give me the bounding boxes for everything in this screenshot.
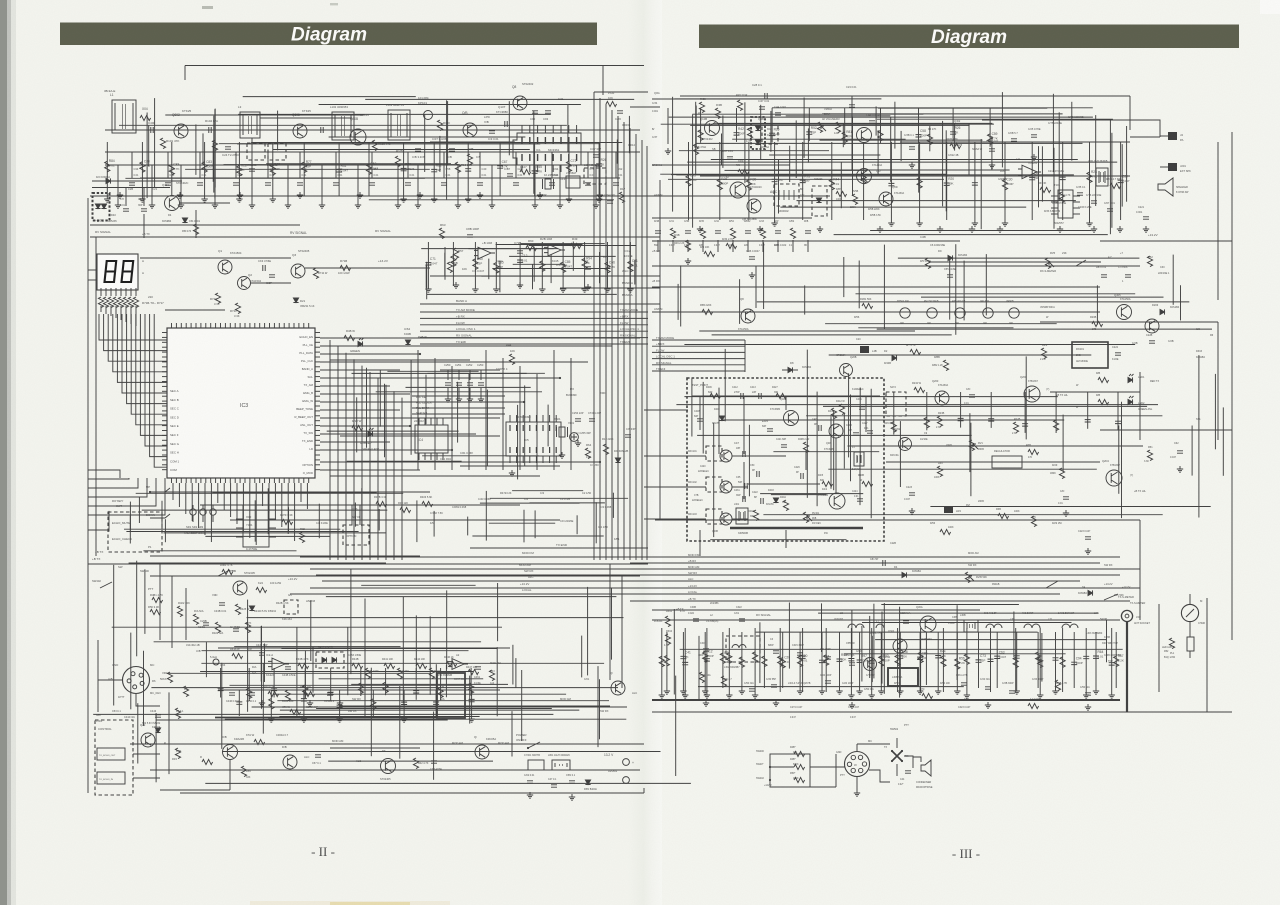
svg-text:680P: 680P [768,644,774,647]
svg-text:C53I 0.1: C53I 0.1 [566,774,576,777]
svg-text:2.2K: 2.2K [1118,659,1124,663]
svg-text:C/B2: C/B2 [789,221,795,223]
svg-text:C22: C22 [518,167,523,171]
svg-text:10/16E: 10/16E [624,254,633,258]
svg-text:C93: C93 [543,117,549,121]
svg-text:+13.2V: +13.2V [288,577,297,581]
svg-text:R49 2.2K: R49 2.2K [674,242,685,245]
svg-text:C/01: C/01 [734,612,740,615]
svg-text:9P: 9P [796,472,799,474]
svg-text:0.01: 0.01 [518,174,523,177]
svg-text:R/52: R/52 [729,221,735,223]
svg-text:J201: J201 [1180,164,1186,168]
svg-text:8P: 8P [754,496,757,499]
svg-text:2.2K: 2.2K [571,164,577,168]
svg-text:N/A: N/A [440,235,445,239]
svg-text:C22: C22 [338,167,343,171]
svg-text:50KA: 50KA [160,677,167,681]
svg-text:GND: GND [836,751,842,754]
svg-text:R44: R44 [506,343,512,347]
svg-text:D2420 5.6V IN5232: D2420 5.6V IN5232 [254,610,277,613]
svg-text:C47: C47 [1034,172,1040,176]
svg-text:Diagram: Diagram [931,27,1007,48]
svg-text:D83 0.01: D83 0.01 [1096,266,1107,269]
svg-text:PLL_DATA: PLL_DATA [299,351,313,355]
svg-text:+13.2V: +13.2V [1104,582,1113,586]
svg-text:Q203: Q203 [932,379,939,383]
svg-text:C420: C420 [700,466,706,468]
svg-text:MC: MC [150,663,154,667]
svg-text:C4/7: C4/7 [734,442,740,445]
svg-text:SEC H: SEC H [170,451,179,455]
svg-text:ANT SOCKET: ANT SOCKET [1134,622,1150,625]
svg-text:ALC: ALC [632,691,637,695]
svg-text:R81: R81 [846,130,852,134]
svg-text:+B RX: +B RX [656,342,665,346]
svg-text:R42B 1.5K: R42B 1.5K [276,601,289,605]
svg-text:C40: C40 [302,167,307,171]
svg-text:PTT: PTT [904,724,909,727]
svg-text:C412: C412 [732,386,738,389]
svg-text:Q/: Q/ [610,671,613,675]
svg-text:R/5B 3.5K: R/5B 3.5K [870,214,881,217]
svg-text:C44B 1/50E: C44B 1/50E [282,674,296,677]
svg-text:310-302-1B: 310-302-1B [186,643,200,647]
svg-text:C/3: C/3 [540,491,545,495]
svg-text:C60: C60 [202,167,207,171]
svg-text:220: 220 [148,295,153,299]
svg-text:C/46 0.0047: C/46 0.0047 [746,250,760,253]
svg-text:A: A [142,271,144,275]
svg-text:RV1: RV1 [978,442,983,445]
svg-text:D4: D4 [894,565,898,569]
svg-text:R23B: R23B [938,412,945,415]
svg-text:K04B: K04B [404,332,411,336]
svg-text:LR3: LR3 [956,509,961,513]
svg-text:D6: D6 [382,749,386,753]
svg-text:C/20 100P: C/20 100P [842,682,854,685]
svg-text:R403 5.6K: R403 5.6K [420,495,433,499]
svg-text:3.3K: 3.3K [214,302,220,306]
svg-text:33K: 33K [246,776,251,779]
svg-text:C252: C252 [466,363,473,367]
svg-text:D/B: D/B [282,745,287,749]
svg-text:C62: C62 [1174,442,1179,445]
svg-text:IC3: IC3 [240,403,248,409]
svg-text:0.047: 0.047 [999,655,1007,659]
svg-text:0.01: 0.01 [410,174,415,177]
svg-text:C/43 0.068: C/43 0.068 [478,497,491,501]
svg-text:R/44B: R/44B [884,362,891,365]
svg-text:Q40B: Q40B [712,531,718,533]
svg-text:C72: C72 [571,159,577,163]
svg-text:R721: R721 [230,309,237,313]
svg-text:+B RX: +B RX [652,279,660,283]
svg-text:C/N2 0.1: C/N2 0.1 [652,164,662,167]
svg-text:C94: C94 [374,167,379,171]
svg-text:IC2-A: IC2-A [266,653,273,657]
svg-text:R33: R33 [172,757,177,761]
svg-text:SW RX: SW RX [688,571,697,575]
svg-text:C/3B 330P: C/3B 330P [1002,682,1014,685]
svg-text:C40: C40 [482,167,487,171]
svg-text:UP: UP [146,485,150,489]
svg-text:SCL: SCL [308,375,314,379]
svg-text:R28: R28 [721,177,727,181]
svg-text:KTA150A: KTA150A [938,384,948,387]
svg-text:R64: R64 [1098,650,1104,654]
svg-text:C/756 7.5K: C/756 7.5K [430,511,443,515]
svg-text:2.3K: 2.3K [1012,432,1017,435]
svg-text:C/76 220/16E: C/76 220/16E [1086,194,1102,197]
svg-text:AGC: AGC [622,269,629,273]
svg-text:10K: 10K [948,182,953,186]
svg-text:- II -: - II - [311,844,335,859]
svg-text:10K: 10K [902,655,907,659]
svg-text:LOCAL OSC 1: LOCAL OSC 1 [456,327,476,331]
svg-text:C/2B: C/2B [1168,340,1174,343]
svg-text:RED TX: RED TX [1150,380,1159,383]
svg-text:C3B 47/6E: C3B 47/6E [430,768,442,771]
svg-text:+B TX H/L: +B TX H/L [1056,393,1069,397]
svg-text:4.7K: 4.7K [536,170,542,174]
svg-text:C/67 0.01: C/67 0.01 [1104,202,1115,205]
svg-text:L30B: L30B [960,614,966,617]
svg-text:SW7: SW7 [116,504,123,508]
svg-text:C44: C44 [900,778,905,781]
svg-text:R42 4.7K: R42 4.7K [418,762,429,765]
svg-text:C444 N/A: C444 N/A [124,716,135,719]
svg-text:C/3B 0.1: C/3B 0.1 [904,134,914,137]
svg-text:R/B: R/B [1096,394,1101,397]
svg-text:DW RX: DW RX [348,709,357,713]
svg-text:D403: D403 [768,489,774,492]
svg-text:FW DEV: FW DEV [812,523,821,525]
svg-text:Q80B: Q80B [350,117,358,121]
svg-text:2.2W: 2.2W [1040,358,1046,361]
svg-text:TX_END: TX_END [302,439,313,443]
svg-text:0.01: 0.01 [374,174,379,177]
svg-text:R37B 3.3K: R37B 3.3K [374,495,387,499]
svg-text:+B TX: +B TX [142,232,150,236]
svg-text:R/A: R/A [252,665,257,669]
svg-text:R/B: R/B [736,164,740,167]
svg-text:20KB: 20KB [946,444,952,447]
svg-text:LD: LD [309,447,313,451]
svg-text:0.047: 0.047 [1122,179,1130,183]
svg-text:R3B: R3B [996,508,1001,511]
svg-text:RX SIGNAL: RX SIGNAL [456,334,472,338]
svg-text:C57 0.1: C57 0.1 [312,762,321,765]
svg-text:R322 10K: R322 10K [178,601,190,605]
svg-text:R51: R51 [1148,446,1153,449]
svg-text:G5: G5 [288,593,292,597]
svg-text:D/0 K0S12B: D/0 K0S12B [614,449,629,453]
svg-text:10K: 10K [510,349,515,353]
svg-text:0.01: 0.01 [302,174,307,177]
svg-text:TX: TX [884,746,887,749]
svg-text:TX_AM: TX_AM [304,383,314,387]
svg-text:C422: C422 [752,491,758,494]
svg-text:R4B W: R4B W [346,329,355,333]
svg-text:R60: R60 [528,239,534,243]
svg-text:3.3K: 3.3K [1144,460,1149,463]
svg-text:C20: C20 [856,338,861,341]
svg-text:Q1: Q1 [218,249,222,253]
svg-text:K24: K24 [258,581,263,585]
svg-text:Q4P: Q4P [826,442,831,445]
svg-text:K0S9B4: K0S9B4 [912,570,921,573]
svg-text:C81 5P: C81 5P [870,558,879,561]
svg-text:C2 1/50: C2 1/50 [582,491,592,495]
svg-text:(Y): (Y) [1046,388,1050,391]
svg-text:R/A N/A: R/A N/A [194,609,204,613]
svg-text:R/29: R/29 [1052,464,1058,467]
svg-text:C254 22P: C254 22P [572,411,584,415]
svg-text:R55: R55 [536,165,542,169]
svg-text:F/B1: F/B1 [614,537,620,541]
svg-text:IN5231 5.1K: IN5231 5.1K [300,304,315,308]
svg-text:R4723 2K: R4723 2K [500,491,512,495]
svg-text:D21: D21 [300,299,306,303]
svg-text:(Y): (Y) [1130,474,1133,477]
svg-text:C3B: C3B [952,616,957,619]
svg-text:KTC3880: KTC3880 [824,448,835,451]
svg-text:TX EMI: TX EMI [456,340,466,344]
svg-text:P1: P1 [148,545,152,549]
svg-text:C42: C42 [238,167,243,171]
svg-text:B/: B/ [652,128,655,131]
svg-text:+13.2V: +13.2V [520,582,529,586]
svg-text:R67: R67 [1118,654,1124,658]
svg-text:10K: 10K [841,658,846,662]
svg-text:0.047: 0.047 [776,178,784,182]
svg-text:C/43: C/43 [759,221,765,223]
svg-text:R/TO: R/TO [894,683,900,685]
svg-text:Q10B: Q10B [700,117,707,121]
svg-text:CONDENSER: CONDENSER [916,781,932,784]
svg-text:A2S503: A2S503 [608,769,618,773]
svg-text:C41: C41 [685,651,691,655]
svg-text:K0S9B4: K0S9B4 [162,220,172,223]
svg-text:R461 4.7K: R461 4.7K [220,563,233,567]
svg-text:C67: C67 [502,160,508,164]
svg-text:2.2K: 2.2K [774,132,780,136]
svg-text:33P: 33P [1034,176,1039,180]
svg-text:C86: C86 [270,167,275,171]
svg-text:C58: C58 [920,129,926,133]
svg-text:R/4B: R/4B [674,234,680,237]
svg-text:CHGB: CHGB [1198,622,1205,625]
svg-text:R84: R84 [109,159,115,163]
svg-text:R/5B 220K: R/5B 220K [868,208,880,211]
svg-text:1B0K: 1B0K [1050,472,1056,475]
svg-text:Q/6A: Q/6A [654,92,660,95]
svg-text:R232 W: R232 W [912,382,922,385]
svg-text:ST02405: ST02405 [298,249,310,253]
svg-text:33008402: 33008402 [778,210,789,213]
svg-text:C30: C30 [1007,177,1013,181]
svg-text:R17: R17 [620,187,626,191]
svg-text:33P: 33P [980,659,985,663]
svg-text:X02: X02 [246,515,252,519]
svg-text:R50*: R50* [790,772,795,775]
svg-text:10K: 10K [922,656,927,660]
svg-text:C50: C50 [750,464,755,467]
svg-text:C/01: C/01 [584,678,590,681]
svg-text:MOD AM: MOD AM [968,551,979,555]
svg-text:RV/B 50K: RV/B 50K [976,576,987,579]
svg-text:R64: R64 [586,443,592,447]
svg-text:+13.2V: +13.2V [378,259,389,263]
svg-text:AM MODE: AM MODE [1076,360,1088,363]
svg-text:C/D: C/D [1060,490,1065,493]
svg-text:C/34 N/A: C/34 N/A [980,678,990,681]
svg-text:R4B W: R4B W [418,335,427,339]
svg-text:L4B: L4B [872,349,877,353]
svg-text:MOD AM: MOD AM [452,741,464,745]
svg-text:C/3B: C/3B [684,221,690,223]
svg-text:KRC/6A: KRC/6A [890,454,899,457]
svg-text:0.01: 0.01 [522,259,528,263]
svg-text:4.7K: 4.7K [680,610,685,613]
svg-text:C42B: C42B [846,425,852,427]
svg-text:C421 60P: C421 60P [776,439,787,441]
svg-text:W/B: W/B [804,221,809,223]
svg-text:ECHO_MUTE: ECHO_MUTE [112,521,130,525]
svg-text:R56: R56 [959,657,965,661]
svg-text:R97: R97 [861,654,867,658]
svg-text:R52: R52 [1164,650,1169,653]
svg-text:ST02405: ST02405 [244,571,255,575]
svg-text:D203: D203 [1152,303,1159,307]
svg-text:3B-9A-E: 3B-9A-E [104,89,115,93]
svg-text:C12: C12 [522,254,528,258]
svg-text:R49: R49 [572,237,578,241]
svg-text:3.3K: 3.3K [234,314,240,318]
svg-text:R/50 10K: R/50 10K [940,682,950,685]
svg-text:R3B: R3B [1026,444,1031,447]
svg-text:R/B 10K: R/B 10K [700,246,710,249]
svg-text:C80: C80 [922,651,928,655]
svg-text:C/D: C/D [966,388,971,391]
svg-text:RV SIGNAL: RV SIGNAL [290,231,307,235]
svg-text:GB7: GB7 [96,713,102,717]
svg-text:C/ 1/50: C/ 1/50 [590,463,599,467]
svg-text:GND: GND [112,663,118,667]
svg-text:A2: A2 [456,653,460,657]
svg-text:C22B: C22B [1146,334,1153,337]
svg-text:PTT: PTT [148,587,154,591]
svg-text:L801 10uH 3400226: L801 10uH 3400226 [548,754,570,757]
svg-text:C20: C20 [784,656,790,660]
svg-text:CONTROL: CONTROL [98,727,112,731]
svg-text:3NP: 3NP [736,494,741,497]
svg-text:C28 0.1: C28 0.1 [752,83,762,87]
svg-text:4.7K: 4.7K [1091,175,1097,179]
svg-text:C/4B: C/4B [920,235,926,239]
svg-text:A: A [142,259,144,263]
svg-text:C/34: C/34 [652,102,658,105]
svg-text:C24 T2.2/50V: C24 T2.2/50V [222,153,240,157]
svg-text:TX EMI: TX EMI [620,340,630,344]
svg-text:C92: C92 [618,167,623,171]
svg-text:C41B: C41B [694,410,700,413]
svg-text:R379 3.3K: R379 3.3K [280,513,293,517]
svg-text:47P: 47P [846,134,851,138]
svg-text:TX-S-METER: TX-S-METER [1130,602,1145,605]
svg-text:X/B: X/B [484,120,489,124]
svg-text:C6 1000/16E: C6 1000/16E [930,243,945,247]
svg-text:RV SIGNAL: RV SIGNAL [375,229,391,233]
svg-text:13.2 V: 13.2 V [604,753,614,757]
svg-text:A05235: A05235 [108,220,117,223]
svg-text:C300A 0.7: C300A 0.7 [276,733,289,737]
svg-text:GREEN LED3: GREEN LED3 [362,447,380,451]
svg-text:22/RELEC: 22/RELEC [692,500,703,502]
svg-text:5.3uH: 5.3uH [210,655,217,659]
svg-text:C63: C63 [999,650,1005,654]
svg-text:KTB1367: KTB1367 [1028,380,1039,383]
svg-text:R56 3.3K: R56 3.3K [148,605,159,609]
svg-text:2.2K: 2.2K [609,265,615,269]
svg-text:36P: 36P [138,204,143,207]
svg-text:+B TX: +B TX [95,550,103,554]
svg-text:KTA1504: KTA1504 [230,251,242,255]
svg-text:D2: D2 [884,349,888,353]
svg-text:R44: R44 [940,650,946,654]
svg-text:C90: C90 [530,117,536,121]
svg-text:0.047: 0.047 [565,265,573,269]
svg-text:KRC104: KRC104 [836,354,846,357]
svg-text:C22B: C22B [890,542,896,545]
svg-text:22P: 22P [752,391,757,394]
svg-text:RV5B: RV5B [852,190,859,193]
svg-text:RX SIGNAL: RX SIGNAL [656,361,672,365]
svg-text:AF VOLUME: AF VOLUME [822,118,836,121]
svg-text:R4 27K: R4 27K [928,128,937,131]
svg-text:C60: C60 [477,257,483,261]
svg-text:0.01: 0.01 [120,204,125,207]
svg-text:R425 W: R425 W [240,607,250,611]
svg-text:TX_SW: TX_SW [303,431,313,435]
svg-text:C453 1/50E: C453 1/50E [348,654,362,657]
svg-text:KTK25: KTK25 [182,109,192,113]
svg-text:C/41: C/41 [669,221,675,223]
svg-text:BEEP_TONE: BEEP_TONE [296,407,313,411]
svg-text:R25: R25 [774,127,780,131]
svg-text:C85: C85 [565,260,571,264]
svg-text:0.01: 0.01 [238,174,243,177]
svg-text:3B: 3B [804,245,807,247]
svg-text:R/B2 1.2K: R/B2 1.2K [932,364,943,367]
svg-text:2K0X07I: 2K0X07I [834,618,844,621]
svg-text:LED LMP: LED LMP [1162,646,1173,649]
svg-text:0.01: 0.01 [446,174,451,177]
svg-text:0.047: 0.047 [1170,456,1177,459]
svg-text:0.01: 0.01 [202,174,207,177]
svg-text:OPTION: OPTION [302,463,313,467]
svg-text:L302 33023B7: L302 33023B7 [724,666,740,669]
svg-text:R40B 2.2R: R40B 2.2R [798,439,810,441]
svg-text:3002557: 3002557 [1054,222,1064,225]
svg-text:C74: C74 [824,654,830,658]
svg-text:4.7K: 4.7K [940,654,946,658]
svg-text:Q3: Q3 [292,253,296,257]
svg-text:IC4: IC4 [418,438,423,442]
svg-text:R51: R51 [724,651,730,655]
svg-text:D53I B400A: D53I B400A [584,788,597,791]
